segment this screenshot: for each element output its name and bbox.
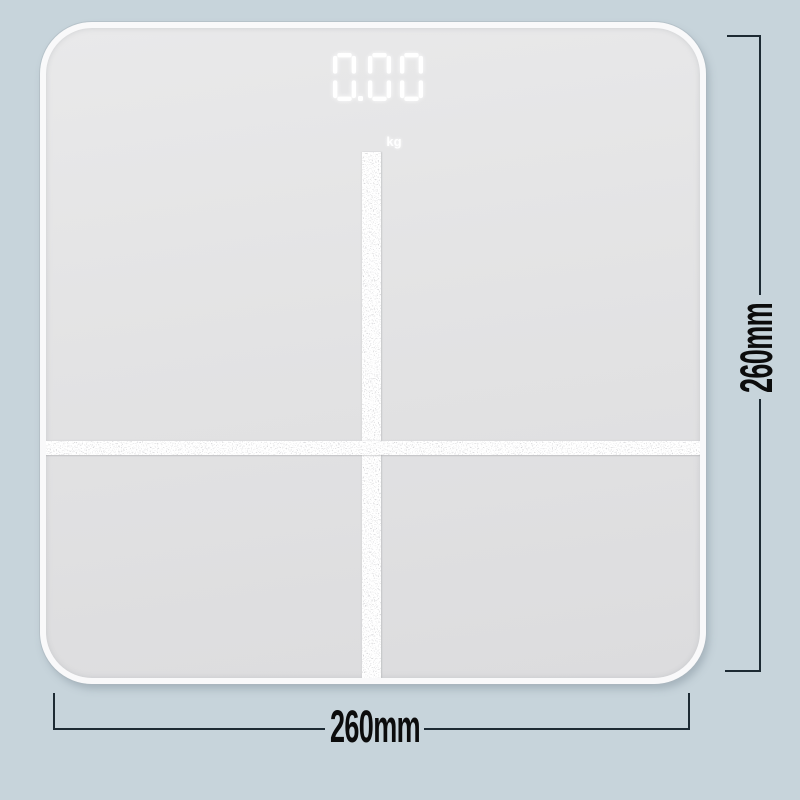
- height-dimension-line-upper: [759, 35, 761, 295]
- weight-unit-label: kg: [379, 134, 409, 149]
- height-dimension-line-lower: [759, 399, 761, 672]
- glitter-stripe-horizontal: [40, 441, 706, 455]
- decimal-point: [358, 96, 363, 101]
- product-image: kg 260mm 260mm: [0, 0, 800, 800]
- scale-led-display: kg: [333, 52, 473, 152]
- seven-segment-digit: [333, 52, 356, 102]
- seven-segment-digit: [400, 52, 423, 102]
- seven-segment-digit: [368, 52, 391, 102]
- glitter-stripe-vertical: [362, 152, 381, 678]
- width-dimension-tick-right: [688, 693, 690, 730]
- width-dimension-line-left: [53, 728, 325, 730]
- height-dimension-tick-bottom: [725, 670, 761, 672]
- scale-body: kg: [40, 22, 706, 684]
- width-dimension-line-right: [424, 728, 690, 730]
- weight-readout: [333, 52, 473, 102]
- width-dimension-label: 260mm: [330, 701, 420, 753]
- width-dimension-tick-left: [53, 693, 55, 730]
- height-dimension-tick-top: [727, 35, 761, 37]
- height-dimension-label: 260mm: [731, 303, 783, 393]
